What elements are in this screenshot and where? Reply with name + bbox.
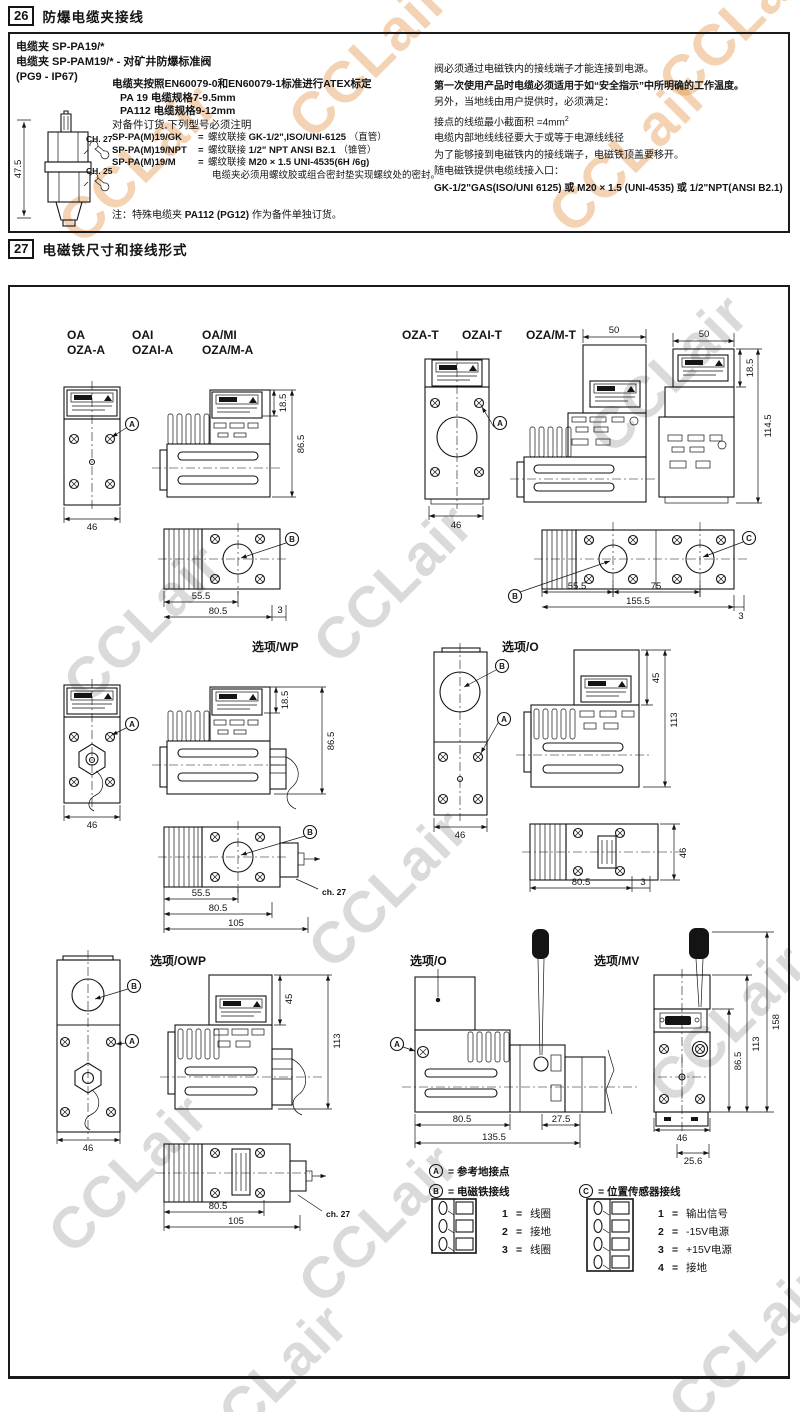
section-title: 防爆电缆夹接线 [42, 6, 144, 26]
model-label: OZAI-T [462, 328, 503, 342]
dim-113: 113 [751, 1036, 762, 1051]
model-spec: 1/2" NPT ANSI B2.1 [249, 145, 336, 156]
seal-note: 电缆夹必须用螺纹胶或组合密封垫实现螺纹处的密封。 [212, 170, 440, 182]
model-row: SP-PA(M)19/GK=螺纹联接 GK-1/2",ISO/UNI-6125 … [112, 132, 440, 145]
svg-text:B: B [433, 1187, 439, 1196]
drawing-owp-side-view: 45 113 [160, 975, 343, 1115]
dim-80-5: 80.5 [209, 903, 228, 914]
model-row: SP-PA(M)19/M=螺纹联接 M20 × 1.5 UNI-4535(6H … [112, 157, 440, 170]
equals-sign: = [198, 132, 208, 145]
wiring-notes-column: 阀必须通过电磁铁内的接线端子才能连接到电源。 第一次使用产品时电缆必须适用于如“… [434, 62, 784, 197]
model-label: OZA-A [67, 343, 105, 357]
dim-46: 46 [678, 848, 689, 859]
option-suffix: /OWP [174, 954, 206, 968]
dim-113: 113 [332, 1033, 343, 1048]
order-note: 对备件订货,下列型号必须注明 [112, 119, 440, 133]
legend-pin-row: 2=-15V电源 [658, 1225, 730, 1238]
model-code: SP-PA(M)19/GK [112, 132, 198, 145]
model-spec: M20 × 1.5 UNI-4535(6H /6g) [249, 157, 370, 168]
model-suffix: （锥管） [338, 145, 376, 156]
dim-75: 75 [651, 581, 662, 592]
svg-text:B: B [512, 592, 518, 601]
drawing-ozat-right-side-view: 18.5 114.5 50 [659, 329, 774, 503]
drawing-oa-side-view: 18.5 86.5 [152, 390, 307, 497]
legend-c-text: = 位置传感器接线 [598, 1185, 681, 1198]
group-ozat-labels: OZA-T OZAI-T OZA/M-T [402, 328, 577, 342]
dim-46: 46 [455, 830, 466, 841]
cable-gland-drawing: 47.5 CH. 27 CH. 25 [14, 110, 114, 228]
dim-46: 46 [83, 1143, 94, 1154]
drawing-o-front-view: B A 46 [434, 643, 511, 841]
model-label: OA/MI [202, 328, 237, 342]
dim-105: 105 [228, 1216, 244, 1227]
model-label: OZA/M-T [526, 328, 577, 342]
dim-55-5: 55.5 [568, 581, 587, 592]
cable-clamp-info-box: 电缆夹 SP-PA19/* 电缆夹 SP-PAM19/* - 对矿井防爆标准阀 … [8, 32, 790, 233]
drawing-ozat-bottom-view: B C 55.5 75 155.5 3 [509, 522, 756, 622]
dim-135-5: 135.5 [482, 1132, 506, 1143]
footnote-bold: PA112 (PG12) [185, 210, 249, 221]
section-27-header: 27 电磁铁尺寸和接线形式 [8, 239, 187, 259]
dim-80-5: 80.5 [209, 1201, 228, 1212]
option-wp-label: 选项/WP [252, 639, 299, 654]
svg-text:B: B [307, 828, 313, 837]
drawing-owp-bottom-view: ch. 27 80.5 105 [156, 1144, 350, 1231]
dim-18-5: 18.5 [745, 359, 756, 378]
mark-a: A [126, 718, 139, 731]
dim-3: 3 [277, 605, 282, 616]
legend-pin-row: 2=接地 [502, 1225, 551, 1238]
group-oa-labels: OA OAI OA/MI OZA-A OZAI-A OZA/M-A [67, 328, 254, 357]
drawing-ozat-front-view: A 46 [425, 351, 507, 531]
svg-text:A: A [129, 420, 135, 429]
dim-46: 46 [451, 520, 462, 531]
dim-50: 50 [699, 329, 710, 340]
dim-27-5: 27.5 [552, 1114, 571, 1125]
note-line-bold: 第一次使用产品时电缆必须适用于如“安全指示”中所明确的工作温度。 [434, 79, 784, 96]
option-o-label: 选项/O [502, 639, 539, 654]
mark-c: C [580, 1185, 593, 1198]
model-thread-label: 螺纹联接 [208, 132, 246, 143]
note-line: 另外，当地线由用户提供时，必须满足： [434, 95, 784, 112]
solenoid-drawings-box: OA OAI OA/MI OZA-A OZAI-A OZA/M-A A 46 1… [8, 285, 790, 1379]
svg-text:A: A [129, 1037, 135, 1046]
note-line: 阀必须通过电磁铁内的接线端子才能连接到电源。 [434, 62, 784, 79]
superscript: 2 [565, 116, 569, 123]
section-26-header: 26 防爆电缆夹接线 [8, 6, 144, 26]
svg-text:B: B [499, 662, 505, 671]
option-prefix: 选项 [252, 639, 276, 654]
model-thread-label: 螺纹联接 [208, 145, 246, 156]
dim-155-5: 155.5 [626, 596, 650, 607]
svg-text:A: A [497, 419, 503, 428]
legend-pin-row: 3=+15V电源 [658, 1243, 732, 1256]
dim-ch27: ch. 27 [326, 1209, 350, 1219]
dim-80-5: 80.5 [209, 606, 228, 617]
solenoid-dimension-drawings: OA OAI OA/MI OZA-A OZAI-A OZA/M-A A 46 1… [10, 287, 788, 1372]
pa19-spec: PA 19 电缆规格7-9.5mm [120, 92, 440, 106]
drawing-wp-front-view: A 46 [64, 679, 139, 831]
section-title: 电磁铁尺寸和接线形式 [42, 239, 187, 259]
note-line: 为了能够接到电磁铁内的接线端子，电磁铁顶盖要移开。 [434, 148, 784, 165]
drawing-oa-bottom-view: B 55.5 80.5 3 [158, 523, 299, 621]
svg-text:B: B [289, 535, 295, 544]
dim-46: 46 [87, 522, 98, 533]
dim-46: 46 [677, 1133, 688, 1144]
option-suffix: /WP [276, 640, 299, 654]
dim-3: 3 [738, 611, 743, 622]
option-prefix: 选项 [410, 953, 434, 968]
mark-a: A [126, 418, 139, 431]
wrench-size-ch25-label: CH. 25 [86, 166, 113, 176]
dim-55-5: 55.5 [192, 888, 211, 899]
wrench-size-ch27-label: CH. 27 [86, 134, 113, 144]
drawing-o-side-view: 45 113 [516, 650, 680, 787]
terminal-block-3pin [432, 1199, 476, 1253]
mark-a: A [126, 1035, 139, 1048]
svg-text:A: A [129, 720, 135, 729]
mark-b: B [496, 660, 509, 673]
legend-pin-row: 1=线圈 [502, 1207, 551, 1220]
note-line: 电缆内部地线线径要大于或等于电源线线径 [434, 131, 784, 148]
option-suffix: /MV [618, 954, 639, 968]
equals-sign: = [198, 145, 208, 158]
model-label: OAI [132, 328, 153, 342]
drawing-o-bottom-view: 46 80.5 3 [522, 824, 689, 892]
dim-3: 3 [640, 877, 645, 888]
model-row: SP-PA(M)19/NPT=螺纹联接 1/2" NPT ANSI B2.1 （… [112, 145, 440, 158]
wiring-legend: A = 参考地接点 B = 电磁铁接线 1=线圈 2=接地 3=线圈 C = 位… [430, 1165, 733, 1275]
mark-b: B [128, 980, 141, 993]
mark-a: A [498, 713, 511, 726]
dim-45: 45 [651, 673, 662, 684]
dim-158: 158 [771, 1014, 782, 1030]
mark-b: B [430, 1185, 443, 1198]
legend-pin-row: 4=接地 [658, 1261, 707, 1274]
svg-text:C: C [746, 534, 752, 543]
svg-text:A: A [394, 1040, 400, 1049]
dim-105: 105 [228, 918, 244, 929]
svg-text:B: B [131, 982, 137, 991]
drawing-wp-bottom-view: B ch. 27 55.5 80.5 105 [158, 821, 346, 933]
option-prefix: 选项 [502, 639, 526, 654]
model-thread-label: 螺纹联接 [208, 157, 246, 168]
option-o2-label: 选项/O [410, 953, 447, 968]
mark-a: A [494, 417, 507, 430]
equals-sign: = [198, 157, 208, 170]
mark-b: B [304, 826, 317, 839]
dim-80-5: 80.5 [572, 877, 591, 888]
dim-25-6: 25.6 [684, 1156, 703, 1167]
dim-86-5: 86.5 [296, 435, 307, 454]
dim-113: 113 [669, 712, 680, 727]
legend-b-text: = 电磁铁接线 [448, 1185, 510, 1198]
mark-b: B [286, 533, 299, 546]
note-line: 随电磁铁提供电缆线接入口： [434, 164, 784, 181]
legend-pin-row: 1=输出信号 [658, 1207, 728, 1220]
drawing-wp-side-view: 18.5 86.5 [152, 687, 337, 809]
legend-pin-row: 3=线圈 [502, 1243, 551, 1256]
model-label: OZAI-A [132, 343, 174, 357]
mark-a: A [391, 1038, 404, 1051]
svg-text:A: A [433, 1167, 439, 1176]
model-spec: GK-1/2",ISO/UNI-6125 [249, 132, 346, 143]
svg-text:C: C [583, 1187, 589, 1196]
model-code: SP-PA(M)19/M [112, 157, 198, 170]
section-number-badge: 26 [8, 6, 34, 26]
datasheet-page: CCLair CCLair CCLair CCLair CCLair CCLai… [0, 0, 800, 1412]
drawing-mv-front-view: 86.5 113 158 46 25.6 [654, 928, 782, 1167]
dim-18-5: 18.5 [278, 394, 289, 413]
pa112-spec: PA112 电缆规格9-12mm [120, 105, 440, 119]
model-code: SP-PA(M)19/NPT [112, 145, 198, 158]
drawing-ozamt-side-view: 50 [510, 325, 658, 502]
atex-standard-line: 电缆夹按照EN60079-0和EN60079-1标准进行ATEX标定 [112, 78, 440, 92]
dim-ch27: ch. 27 [322, 887, 346, 897]
option-owp-label: 选项/OWP [150, 953, 206, 968]
clamp-spec-block: 电缆夹按照EN60079-0和EN60079-1标准进行ATEX标定 PA 19… [112, 78, 440, 182]
option-prefix: 选项 [594, 953, 618, 968]
drawing-oa-front-view: A 46 [64, 381, 139, 533]
dim-86-5: 86.5 [326, 732, 337, 751]
clamp-model-line: 电缆夹 SP-PAM19/* - 对矿井防爆标准阀 [16, 55, 211, 70]
legend-a-text: = 参考地接点 [448, 1165, 510, 1178]
option-mv-label: 选项/MV [594, 953, 639, 968]
dim-18-5: 18.5 [280, 691, 291, 710]
option-suffix: /O [434, 954, 447, 968]
ground-screw [693, 1042, 708, 1057]
dim-47-5: 47.5 [14, 160, 24, 179]
mark-a: A [430, 1165, 443, 1178]
footnote: 注：特殊电缆夹 PA112 (PG12) 作为备件单独订货。 [112, 206, 342, 221]
model-label: OA [67, 328, 85, 342]
mark-c: C [743, 532, 756, 545]
svg-text:A: A [501, 715, 507, 724]
dim-50: 50 [609, 325, 620, 336]
dim-80-5: 80.5 [453, 1114, 472, 1125]
dim-45: 45 [284, 994, 295, 1005]
dim-114-5: 114.5 [763, 414, 774, 437]
note-line-bold: GK-1/2"GAS(ISO/UNI 6125) 或 M20 × 1.5 (UN… [434, 181, 784, 198]
model-suffix: （直管） [349, 132, 387, 143]
section-number-badge: 27 [8, 239, 34, 259]
model-label: OZA-T [402, 328, 439, 342]
dim-55-5: 55.5 [192, 591, 211, 602]
model-label: OZA/M-A [202, 343, 254, 357]
note-line: 接点的线缆最小截面积 =4mm2 [434, 112, 784, 132]
clamp-model-line: 电缆夹 SP-PA19/* [16, 40, 211, 55]
option-suffix: /O [526, 640, 539, 654]
dim-46: 46 [87, 820, 98, 831]
terminal-block-4pin [587, 1199, 633, 1271]
option-prefix: 选项 [150, 953, 174, 968]
drawing-owp-front-view: B A 46 [57, 950, 141, 1154]
mark-b: B [509, 590, 522, 603]
dim-86-5: 86.5 [733, 1052, 744, 1071]
